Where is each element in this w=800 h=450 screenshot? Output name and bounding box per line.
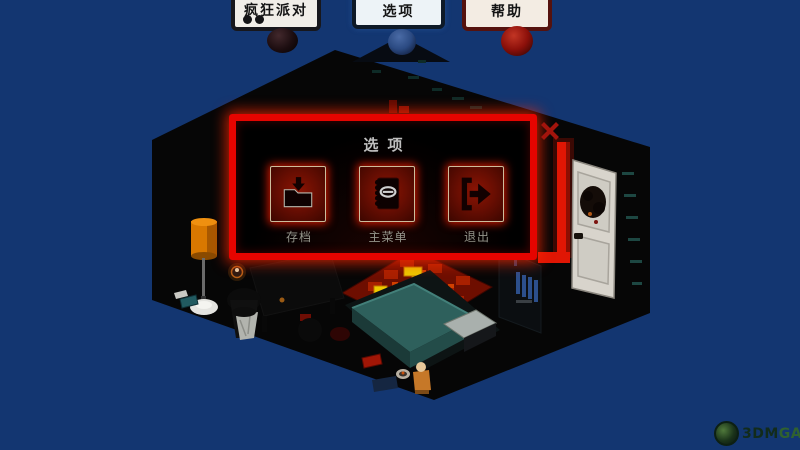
ellipsis-dots bbox=[243, 15, 264, 24]
folder-download-icon bbox=[279, 175, 317, 213]
dark-character-head bbox=[267, 28, 298, 53]
dialog-title: 选项 bbox=[236, 134, 530, 155]
save-option: 存档 bbox=[270, 166, 328, 245]
watermark-brand: 3DM bbox=[742, 426, 779, 442]
quit-option: 退出 bbox=[448, 166, 506, 245]
door-handle bbox=[574, 233, 583, 239]
close-icon bbox=[540, 121, 560, 141]
main-menu-button[interactable] bbox=[359, 166, 415, 222]
3dm-logo-icon bbox=[714, 421, 739, 446]
close-button[interactable] bbox=[540, 121, 560, 141]
white-door bbox=[572, 160, 616, 298]
red-character-head bbox=[501, 26, 533, 56]
blue-character-head bbox=[388, 29, 416, 55]
save-label: 存档 bbox=[270, 228, 328, 245]
quit-button[interactable] bbox=[448, 166, 504, 222]
speech-card-3[interactable]: 帮助 bbox=[462, 0, 552, 31]
speech-card-3-text: 帮助 bbox=[466, 1, 548, 21]
candle bbox=[228, 263, 246, 281]
quit-label: 退出 bbox=[448, 228, 506, 245]
watermark-text: 3DMGAME bbox=[742, 426, 800, 442]
main-menu-label: 主菜单 bbox=[359, 228, 417, 245]
options-dialog: 选项 存档 bbox=[229, 114, 537, 260]
dialog-button-row: 存档 主菜单 bbox=[236, 166, 530, 245]
notebook-icon bbox=[368, 175, 406, 213]
save-button[interactable] bbox=[270, 166, 326, 222]
main-menu-option: 主菜单 bbox=[359, 166, 417, 245]
speech-card-2-text: 选项 bbox=[356, 1, 441, 21]
speech-card-1[interactable]: 疯狂派对 bbox=[231, 0, 321, 31]
exit-right-icon bbox=[457, 175, 495, 213]
watermark: 3DMGAME bbox=[714, 421, 800, 446]
speech-card-2[interactable]: 选项 bbox=[352, 0, 445, 29]
watermark-suffix: GAME bbox=[779, 426, 800, 442]
